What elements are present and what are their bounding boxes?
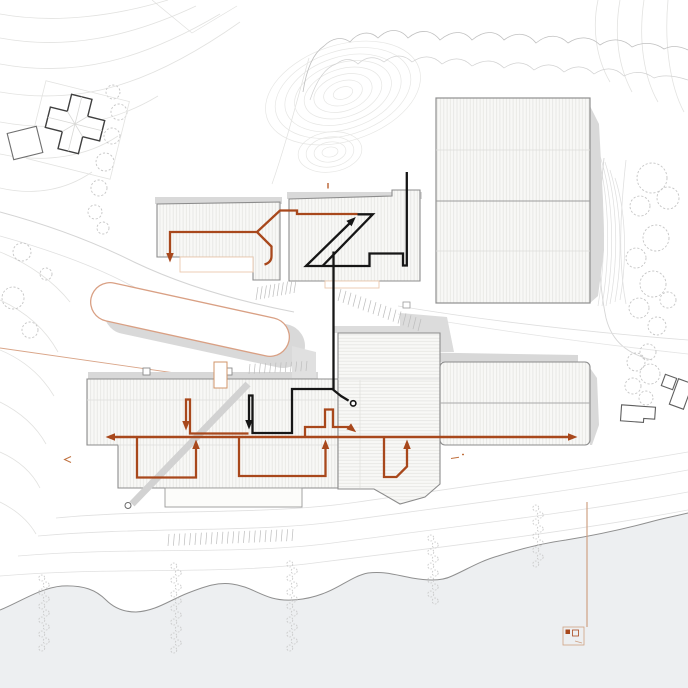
rooflight (403, 302, 410, 308)
site-plan-svg (0, 0, 688, 688)
site-mark (451, 457, 459, 458)
house-c (620, 405, 655, 423)
building-shadow (88, 372, 318, 379)
barn (7, 126, 43, 159)
rooflight (214, 362, 227, 388)
hill-rings-b (296, 128, 365, 177)
lower-terrace (165, 488, 302, 507)
main-wing-central (338, 333, 440, 504)
treeline (310, 56, 688, 100)
contours-top-left (0, 0, 240, 191)
entry-door-circle (351, 401, 356, 406)
building-shadow (292, 346, 316, 378)
road-line (621, 160, 626, 304)
site-plan (0, 0, 688, 688)
water (0, 513, 688, 688)
rooflight (143, 368, 150, 375)
hall-north-east (436, 98, 590, 303)
water-layer (0, 513, 688, 688)
hill-rings-a (252, 23, 434, 164)
contours-top-right (595, 0, 684, 112)
site-mark (65, 457, 72, 463)
stadium-mound (110, 302, 283, 346)
route-arrowhead (166, 253, 174, 263)
column-circle (125, 503, 131, 509)
contours-left (0, 252, 70, 534)
contours-top-center (152, 0, 309, 184)
house-a (661, 374, 676, 389)
building-shadow (590, 368, 599, 445)
main-wing-east (440, 362, 590, 445)
terrace-outline (180, 257, 253, 272)
cross-house (41, 90, 109, 158)
north-wing-east (289, 190, 420, 281)
